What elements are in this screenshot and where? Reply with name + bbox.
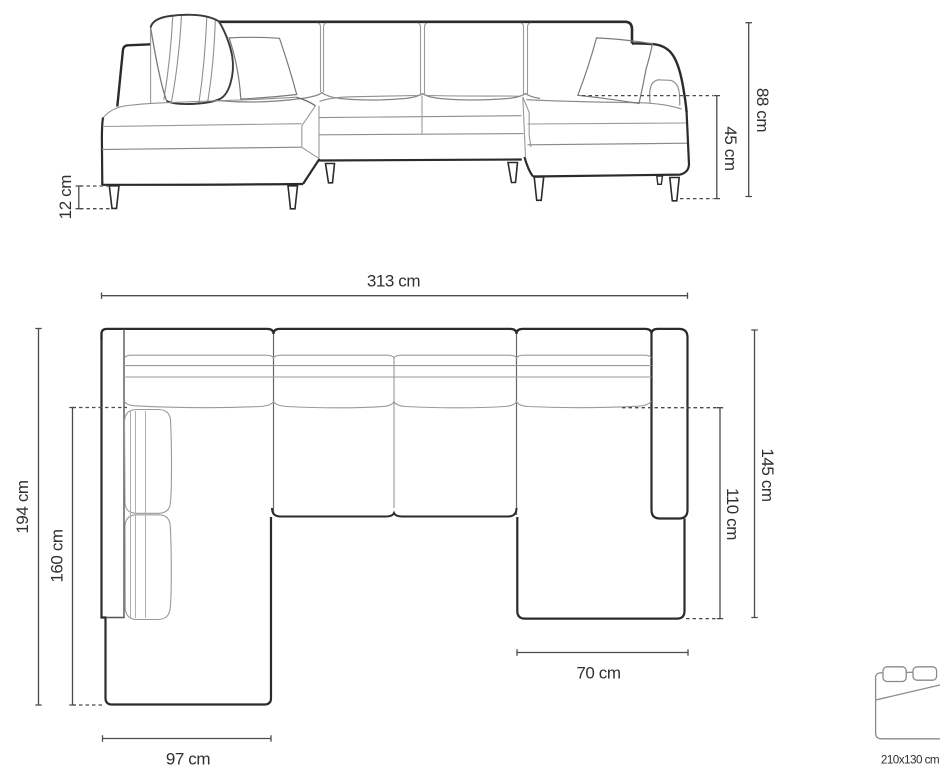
svg-text:145 cm: 145 cm bbox=[758, 448, 777, 502]
svg-text:70 cm: 70 cm bbox=[576, 664, 621, 683]
svg-text:88 cm: 88 cm bbox=[753, 88, 772, 133]
svg-text:160 cm: 160 cm bbox=[48, 529, 67, 583]
svg-text:12 cm: 12 cm bbox=[56, 175, 75, 220]
svg-text:194 cm: 194 cm bbox=[13, 480, 32, 534]
svg-text:210x130 cm: 210x130 cm bbox=[881, 754, 939, 767]
svg-text:110 cm: 110 cm bbox=[723, 488, 742, 540]
svg-text:45 cm: 45 cm bbox=[721, 126, 740, 171]
svg-text:97 cm: 97 cm bbox=[166, 750, 211, 769]
svg-text:313 cm: 313 cm bbox=[367, 272, 421, 291]
